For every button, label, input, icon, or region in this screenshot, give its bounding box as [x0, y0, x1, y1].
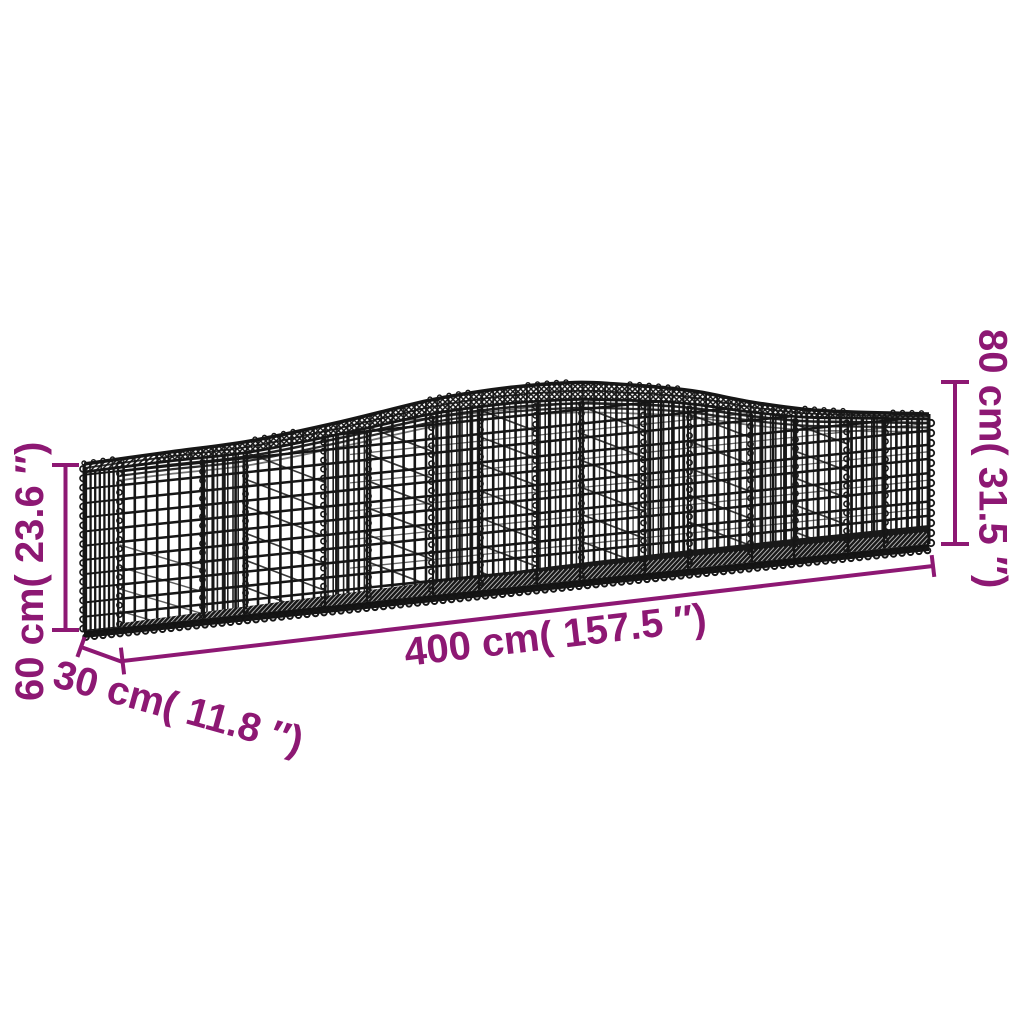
svg-text:80 cm( 31.5 ″): 80 cm( 31.5 ″) — [971, 329, 1015, 588]
svg-text:60 cm( 23.6 ″): 60 cm( 23.6 ″) — [8, 442, 52, 701]
